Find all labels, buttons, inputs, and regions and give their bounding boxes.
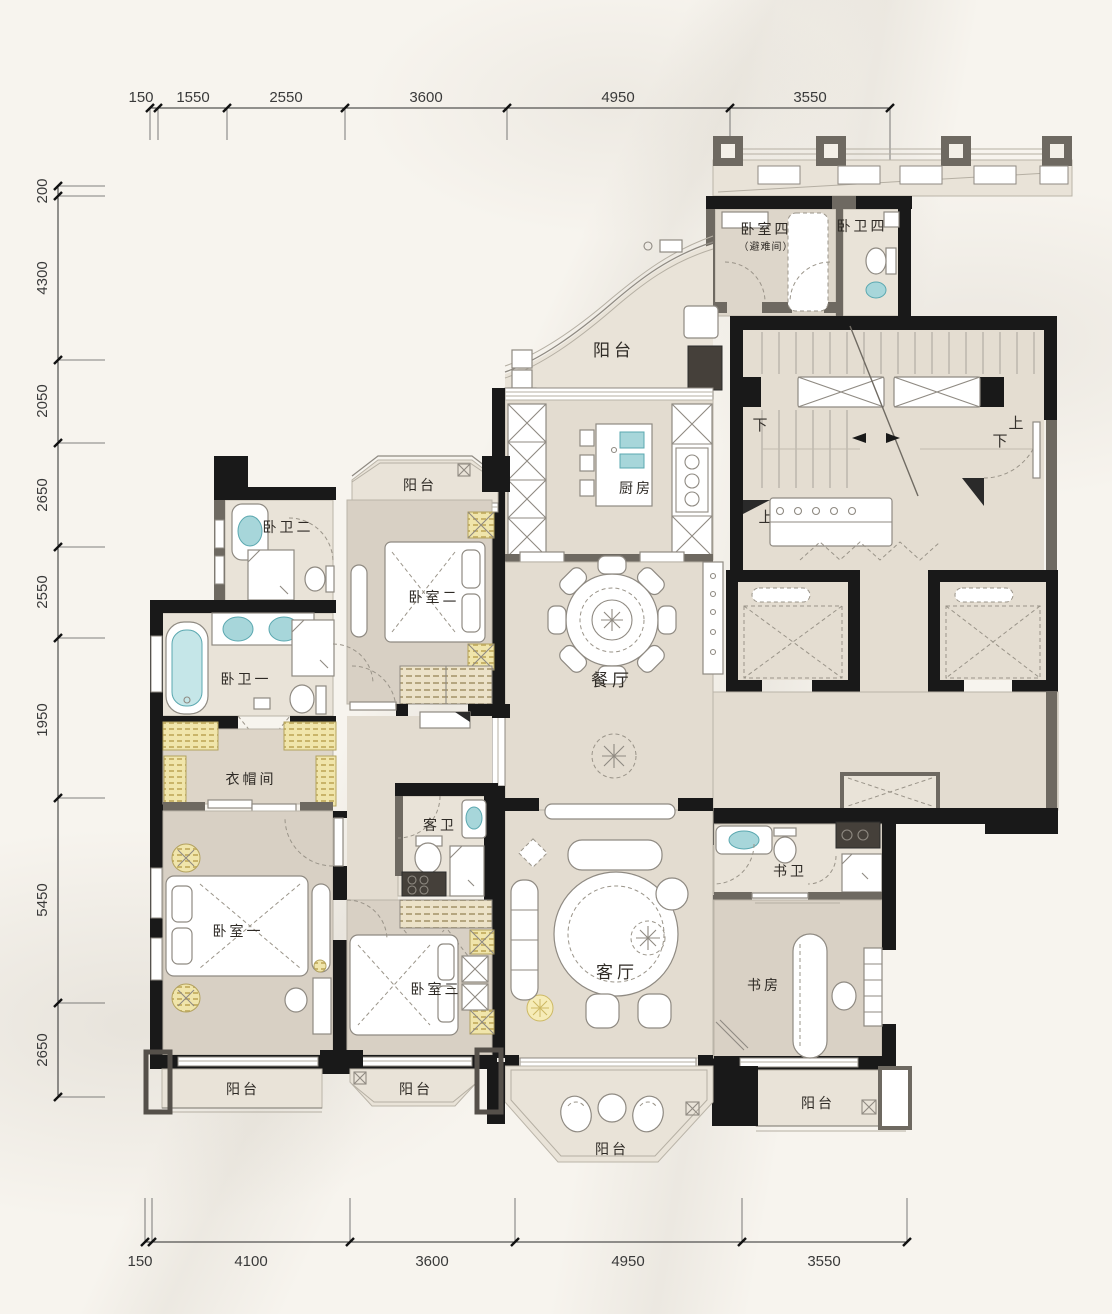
desk-chair: [832, 982, 856, 1010]
bath2: 卧卫二: [214, 456, 336, 605]
bath2-label: 卧卫二: [263, 520, 314, 536]
column: [880, 1068, 910, 1128]
bedroom4-label: 卧室四: [741, 221, 792, 238]
toilet-icon: [316, 686, 326, 714]
dimension-chain-bottom: 150 4100 3600 4950 3550: [127, 1198, 911, 1270]
entry-door-leaf: [1033, 422, 1040, 478]
dim-bottom-3: 4950: [611, 1253, 644, 1270]
kitchen-cabinets-right: [672, 404, 712, 556]
balcony-bl-label: 阳台: [226, 1082, 260, 1098]
sink-icon: [620, 432, 644, 448]
bedroom1-door-leaf: [334, 818, 343, 866]
elevator-block: [726, 570, 1058, 692]
dim-left-2: 2050: [34, 384, 51, 417]
study-bath-label: 书卫: [773, 864, 807, 880]
bench: [312, 884, 330, 972]
dining-table: [548, 556, 676, 684]
sink-icon: [729, 831, 759, 849]
bath1-label: 卧卫一: [221, 672, 272, 688]
dim-top-0: 150: [128, 89, 153, 106]
sink-icon: [238, 516, 262, 546]
wardrobe: [284, 722, 336, 750]
kitchen-cabinets-left: [508, 404, 546, 556]
dim-bottom-0: 150: [127, 1253, 152, 1270]
bedroom3: 卧室三: [347, 900, 497, 1069]
bedroom2-door-leaf: [350, 702, 396, 710]
sink-icon: [620, 454, 644, 468]
wardrobe: [164, 756, 186, 806]
tv-cabinet: [313, 978, 331, 1034]
sink-icon: [466, 807, 482, 829]
study-label: 书房: [747, 978, 781, 994]
sliding-door: [208, 800, 252, 808]
stair-core: 下 上 下 上: [730, 316, 1057, 570]
study-sliding-door: [752, 893, 808, 898]
dim-left-6: 5450: [34, 883, 51, 916]
stair-down-label: 下: [752, 416, 767, 434]
living: 客厅: [505, 798, 713, 1069]
dim-top-1: 1550: [176, 89, 209, 106]
dim-left-7: 2650: [34, 1033, 51, 1066]
dining-cabinet: [703, 562, 723, 674]
balcony-top-label: 阳台: [593, 341, 635, 361]
kitchen: 厨房: [505, 388, 713, 562]
wardrobe: [316, 756, 336, 806]
dimension-chain-left: 200 4300 2050 2650 2550 1950 5450 2650: [34, 178, 105, 1101]
dim-left-5: 1950: [34, 703, 51, 736]
stair-up-label: 上: [1008, 414, 1023, 432]
sink-icon: [866, 282, 886, 298]
bedroom3-label: 卧室三: [411, 981, 462, 998]
dim-left-4: 2550: [34, 575, 51, 608]
dim-bottom-4: 3550: [807, 1253, 840, 1270]
guest-bath-label: 客卫: [423, 817, 457, 834]
dim-left-3: 2650: [34, 478, 51, 511]
bedroom2-label: 卧室二: [409, 589, 460, 606]
dim-top-2: 2550: [269, 89, 302, 106]
balcony-bc-label: 阳台: [595, 1142, 629, 1158]
elevator-left: [726, 570, 860, 692]
dim-top-5: 3550: [793, 89, 826, 106]
dim-top-4: 4950: [601, 89, 634, 106]
top-corridor: [713, 136, 1072, 196]
balcony-bottom-center: 阳台: [487, 1062, 713, 1162]
balcony-table: [598, 1094, 626, 1122]
floor-plan-canvas: 150 1550 2550 3600 4950 3550 200 4300 20…: [0, 0, 1112, 1314]
floor-plan-drawing: 150 1550 2550 3600 4950 3550 200 4300 20…: [0, 0, 1112, 1314]
dim-bottom-1: 4100: [234, 1253, 267, 1270]
dim-left-1: 4300: [34, 261, 51, 294]
balcony-ul-label: 阳台: [403, 478, 437, 494]
dim-bottom-2: 3600: [415, 1253, 448, 1270]
elevator-right: [928, 570, 1058, 692]
dim-left-0: 200: [34, 178, 51, 203]
bedroom4-block: 卧室四 （避难间） 卧卫四: [706, 196, 912, 330]
dining: 餐厅: [505, 556, 723, 810]
side-table: [656, 878, 688, 910]
balcony-br-label: 阳台: [801, 1096, 835, 1112]
rear-corridor: [700, 692, 1058, 834]
balcony-bottom-right: 阳台: [712, 1066, 910, 1131]
balcony-top: 阳台: [505, 236, 722, 398]
living-label: 客厅: [596, 963, 638, 983]
toilet-icon: [886, 248, 896, 274]
bedroom1-label: 卧室一: [213, 923, 264, 940]
bookshelf: [864, 948, 882, 1026]
armchair: [586, 994, 619, 1028]
bedroom4-sublabel: （避难间）: [739, 240, 794, 253]
sofa: [568, 840, 662, 870]
console-table: [545, 804, 675, 819]
cloakroom: 衣帽间: [163, 722, 336, 812]
sink-icon: [223, 617, 253, 641]
toilet-icon: [326, 566, 334, 592]
wardrobe: [163, 722, 218, 750]
dim-top-3: 3600: [409, 89, 442, 106]
cloakroom-label: 衣帽间: [226, 772, 277, 788]
bedroom2: 卧室二: [347, 500, 510, 718]
bedroom1: 卧室一: [163, 811, 347, 1055]
wardrobe: [400, 900, 492, 928]
armchair: [638, 994, 671, 1028]
desk: [793, 934, 827, 1058]
dining-label: 餐厅: [591, 671, 633, 691]
long-sofa: [511, 880, 538, 1000]
chair: [285, 988, 307, 1012]
bath4-label: 卧卫四: [837, 219, 888, 235]
toilet-icon: [774, 828, 796, 836]
bench: [351, 565, 367, 637]
guest-bath: 客卫: [395, 783, 498, 903]
kitchen-label: 厨房: [619, 481, 653, 497]
balcony-bm-label: 阳台: [399, 1082, 433, 1098]
stair-down-label-2: 下: [992, 432, 1007, 450]
